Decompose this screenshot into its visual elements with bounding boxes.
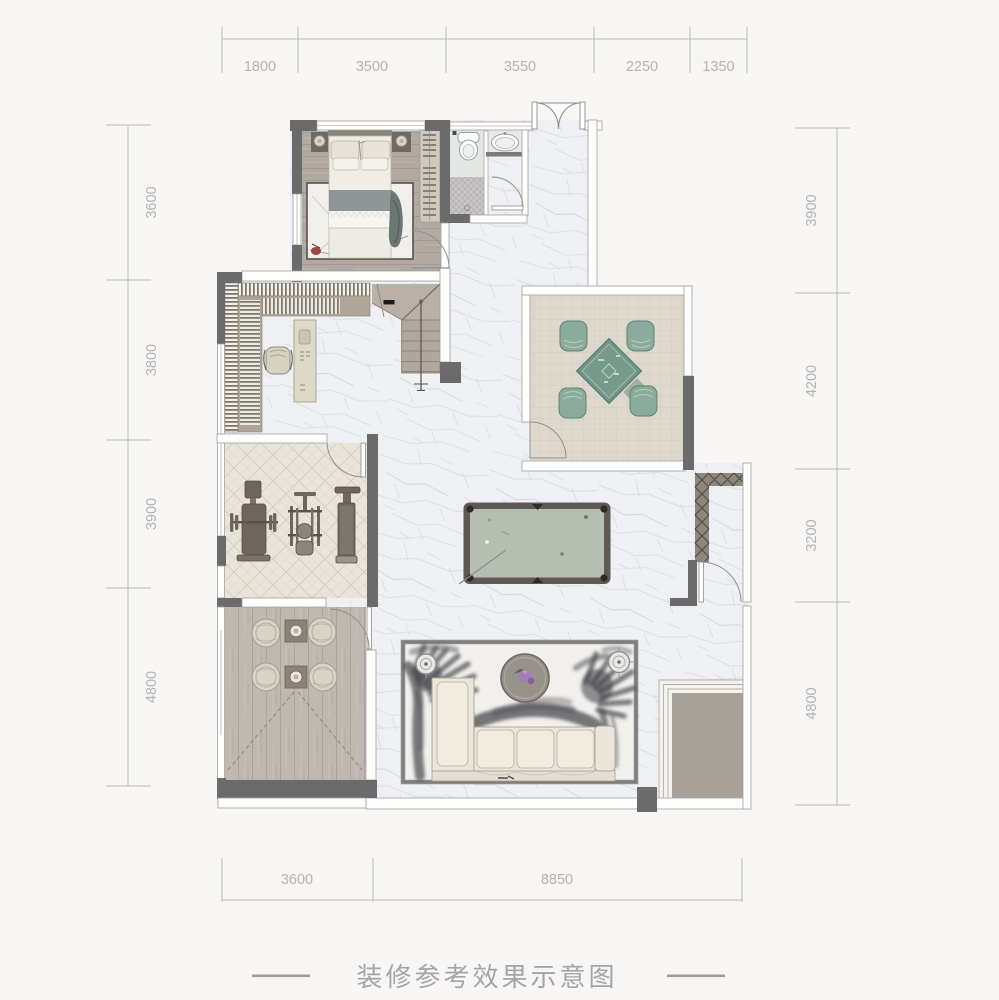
svg-text:3900: 3900 [804,194,820,226]
svg-text:3800: 3800 [144,344,160,376]
svg-text:4800: 4800 [144,671,160,703]
svg-text:3500: 3500 [356,59,388,75]
svg-text:8850: 8850 [541,872,573,888]
svg-text:3600: 3600 [144,186,160,218]
svg-text:4800: 4800 [804,687,820,719]
svg-text:1350: 1350 [702,59,734,75]
svg-text:4200: 4200 [804,365,820,397]
svg-text:3900: 3900 [144,498,160,530]
svg-text:3600: 3600 [281,872,313,888]
svg-text:3200: 3200 [804,519,820,551]
svg-text:2250: 2250 [626,59,658,75]
svg-text:3550: 3550 [504,59,536,75]
svg-text:1800: 1800 [244,59,276,75]
svg-text:装修参考效果示意图: 装修参考效果示意图 [356,962,617,992]
